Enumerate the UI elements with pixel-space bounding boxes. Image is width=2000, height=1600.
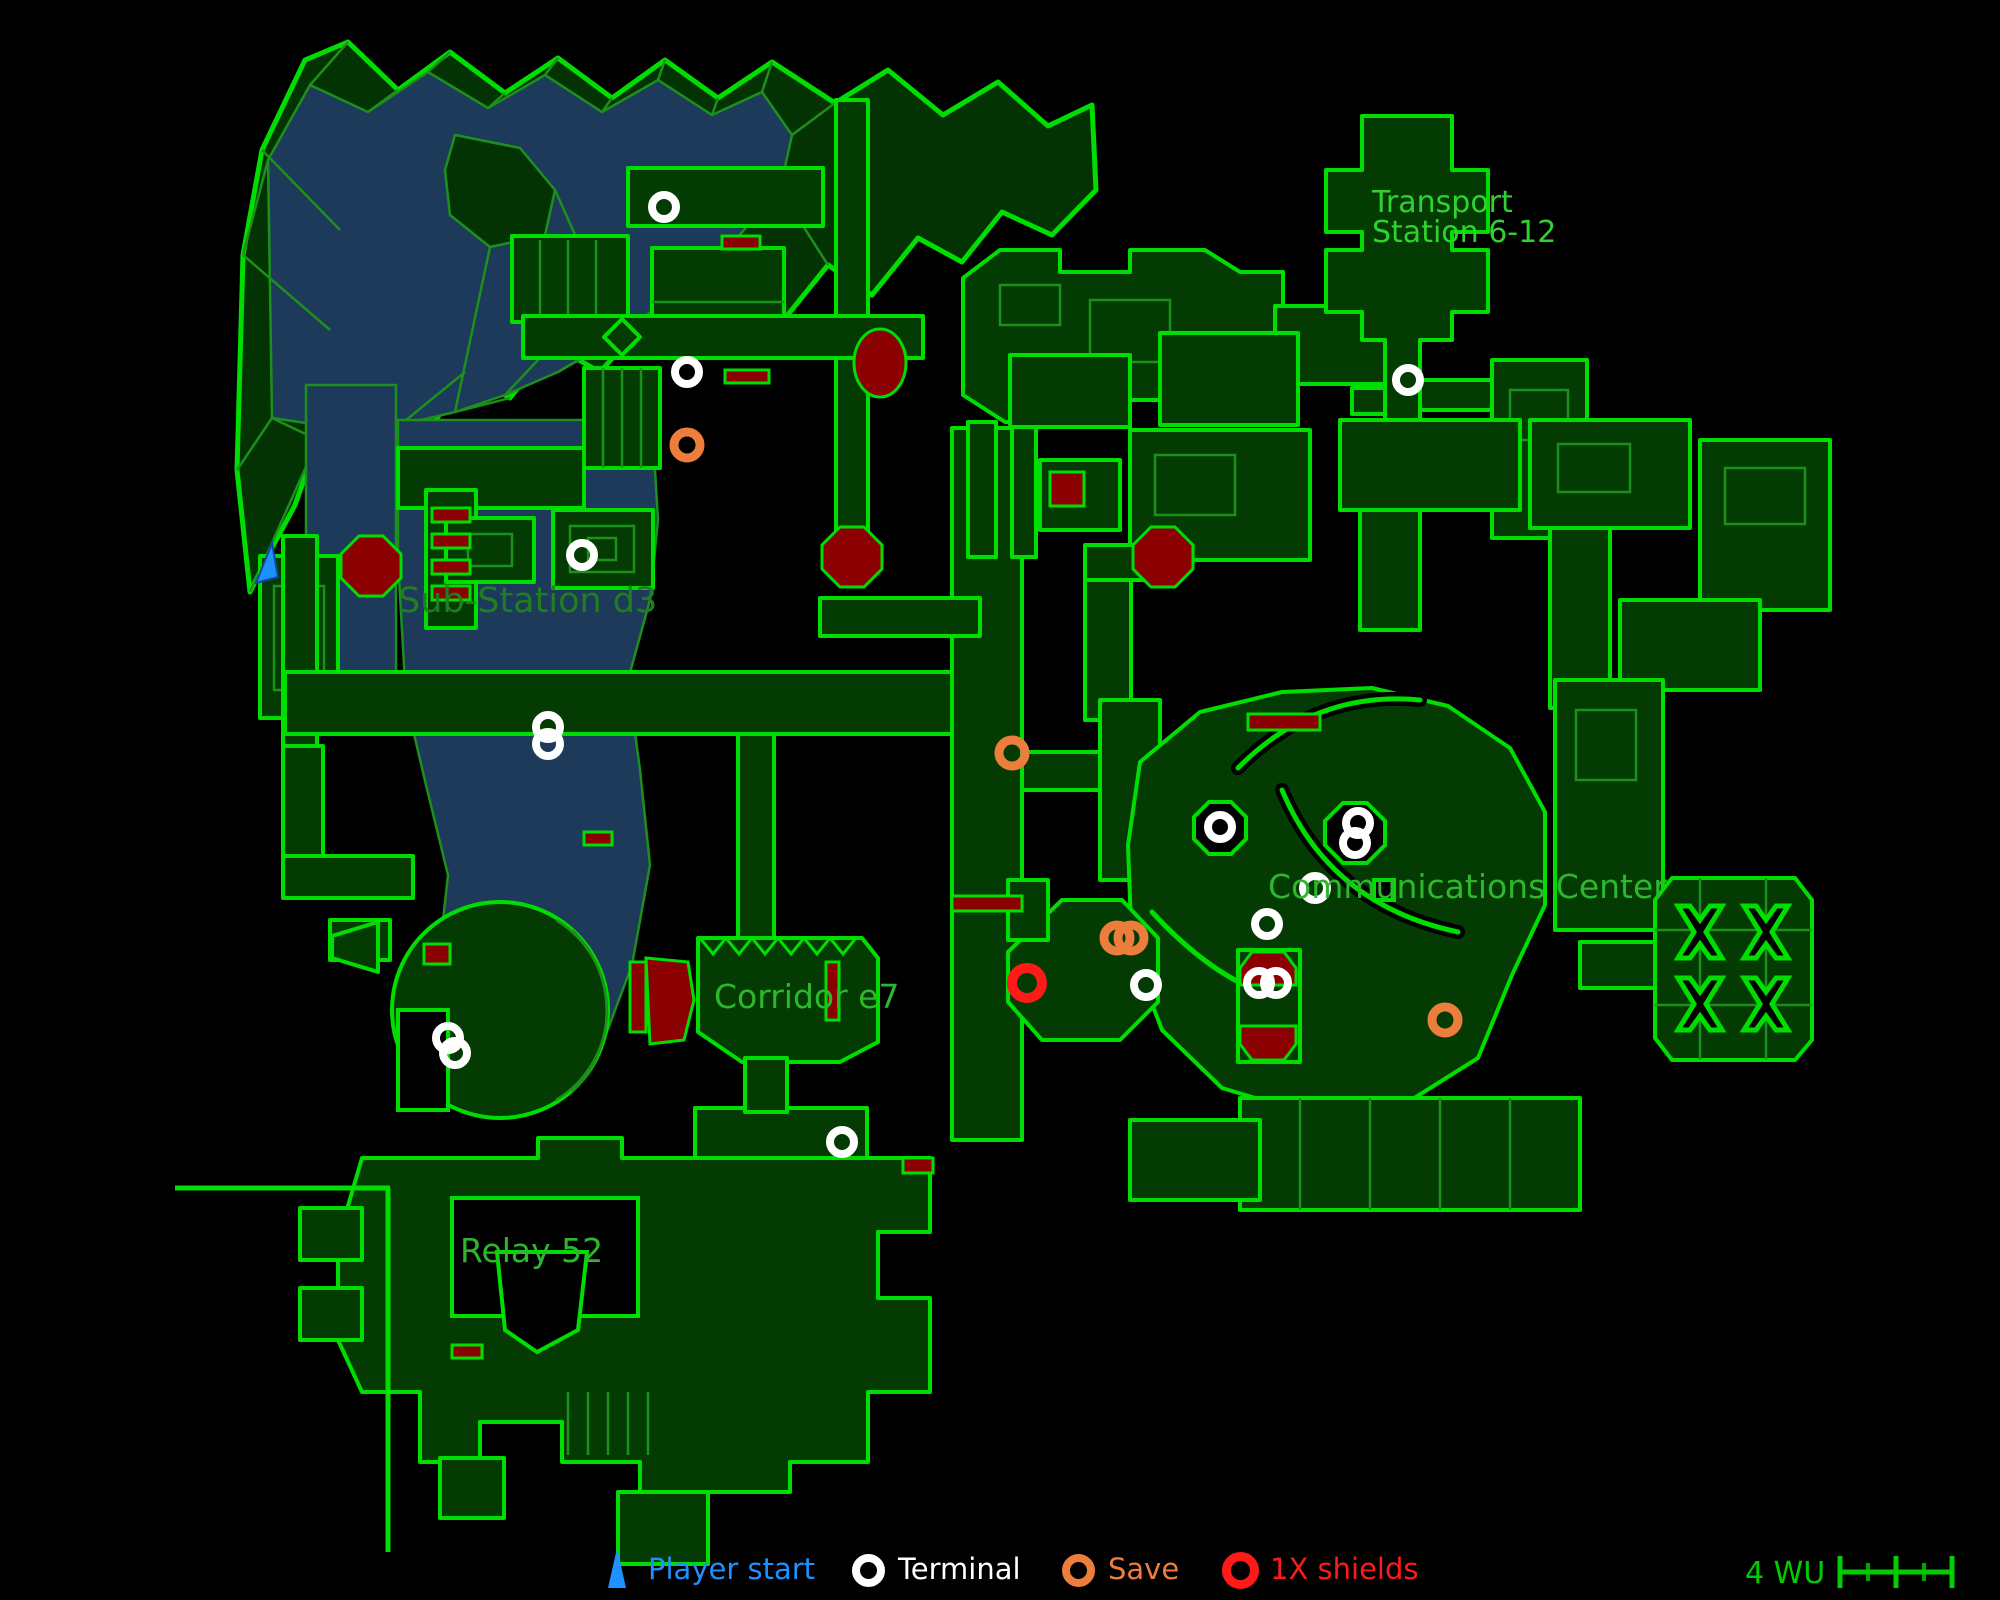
level-map-screen: Transport Station 6-12 Sub-Station d3 Co… (0, 0, 2000, 1600)
label-sub-station: Sub-Station d3 (398, 581, 657, 621)
shield-icon (1222, 1552, 1259, 1589)
legend-label-terminal: Terminal (898, 1552, 1021, 1586)
level-map: Transport Station 6-12 Sub-Station d3 Co… (0, 0, 2000, 1600)
player-start-icon (608, 1548, 626, 1588)
scale-ruler (1836, 1548, 1958, 1596)
scale-label: 4 WU (1745, 1556, 1825, 1591)
terminal-icon (852, 1554, 885, 1587)
label-communications-center: Communications Center (1268, 867, 1667, 906)
save-marker (674, 432, 700, 458)
label-corridor-e7: Corridor e7 (714, 977, 899, 1016)
legend-label-player-start: Player start (648, 1552, 815, 1586)
legend-label-shields: 1X shields (1270, 1552, 1419, 1586)
legend: Player start Terminal Save 1X shields 4 … (0, 1540, 2000, 1600)
label-transport-station-line2: Station 6-12 (1372, 215, 1556, 250)
legend-label-save: Save (1108, 1552, 1179, 1586)
terminal-marker (675, 360, 699, 384)
label-relay-52: Relay 52 (460, 1231, 603, 1270)
save-icon (1062, 1554, 1095, 1587)
